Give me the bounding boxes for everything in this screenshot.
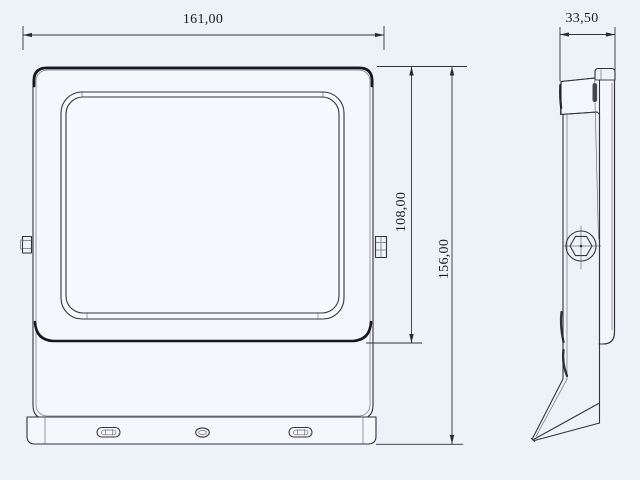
- pivot-knob-right: [376, 237, 387, 258]
- front-view: [21, 67, 387, 444]
- pivot-nut: [563, 226, 601, 269]
- side-front-dark-edge: [560, 85, 561, 108]
- side-view: [532, 69, 616, 442]
- pivot-knob-left: [21, 237, 32, 254]
- bracket-foot: [532, 379, 600, 442]
- dimension-label-overall-height: 156,00: [437, 239, 453, 279]
- technical-drawing-canvas: 161,00 33,50 108,00 156,00: [0, 0, 640, 480]
- dim-width: [23, 26, 384, 50]
- bracket-dark-wedge-lower: [563, 350, 567, 376]
- glass-bezel-outer: [61, 92, 344, 319]
- side-body: [561, 78, 615, 344]
- dimension-label-width: 161,00: [183, 12, 223, 28]
- side-top-tab: [595, 69, 615, 81]
- dimension-label-head-height: 108,00: [394, 192, 410, 232]
- drawing-svg: [0, 0, 640, 480]
- dimension-label-depth: 33,50: [566, 11, 599, 27]
- dim-depth: [560, 27, 615, 81]
